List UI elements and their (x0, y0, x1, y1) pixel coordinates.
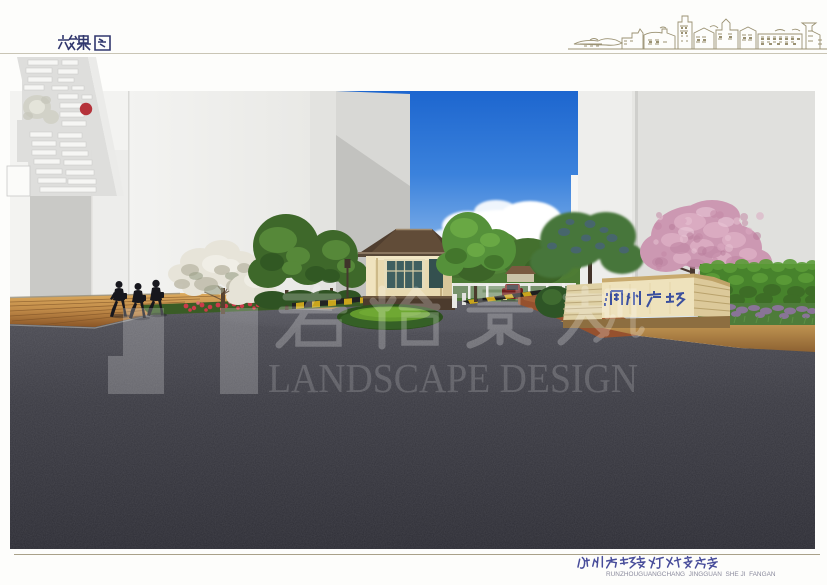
svg-text:LANDSCAPE DESIGN: LANDSCAPE DESIGN (268, 355, 638, 401)
